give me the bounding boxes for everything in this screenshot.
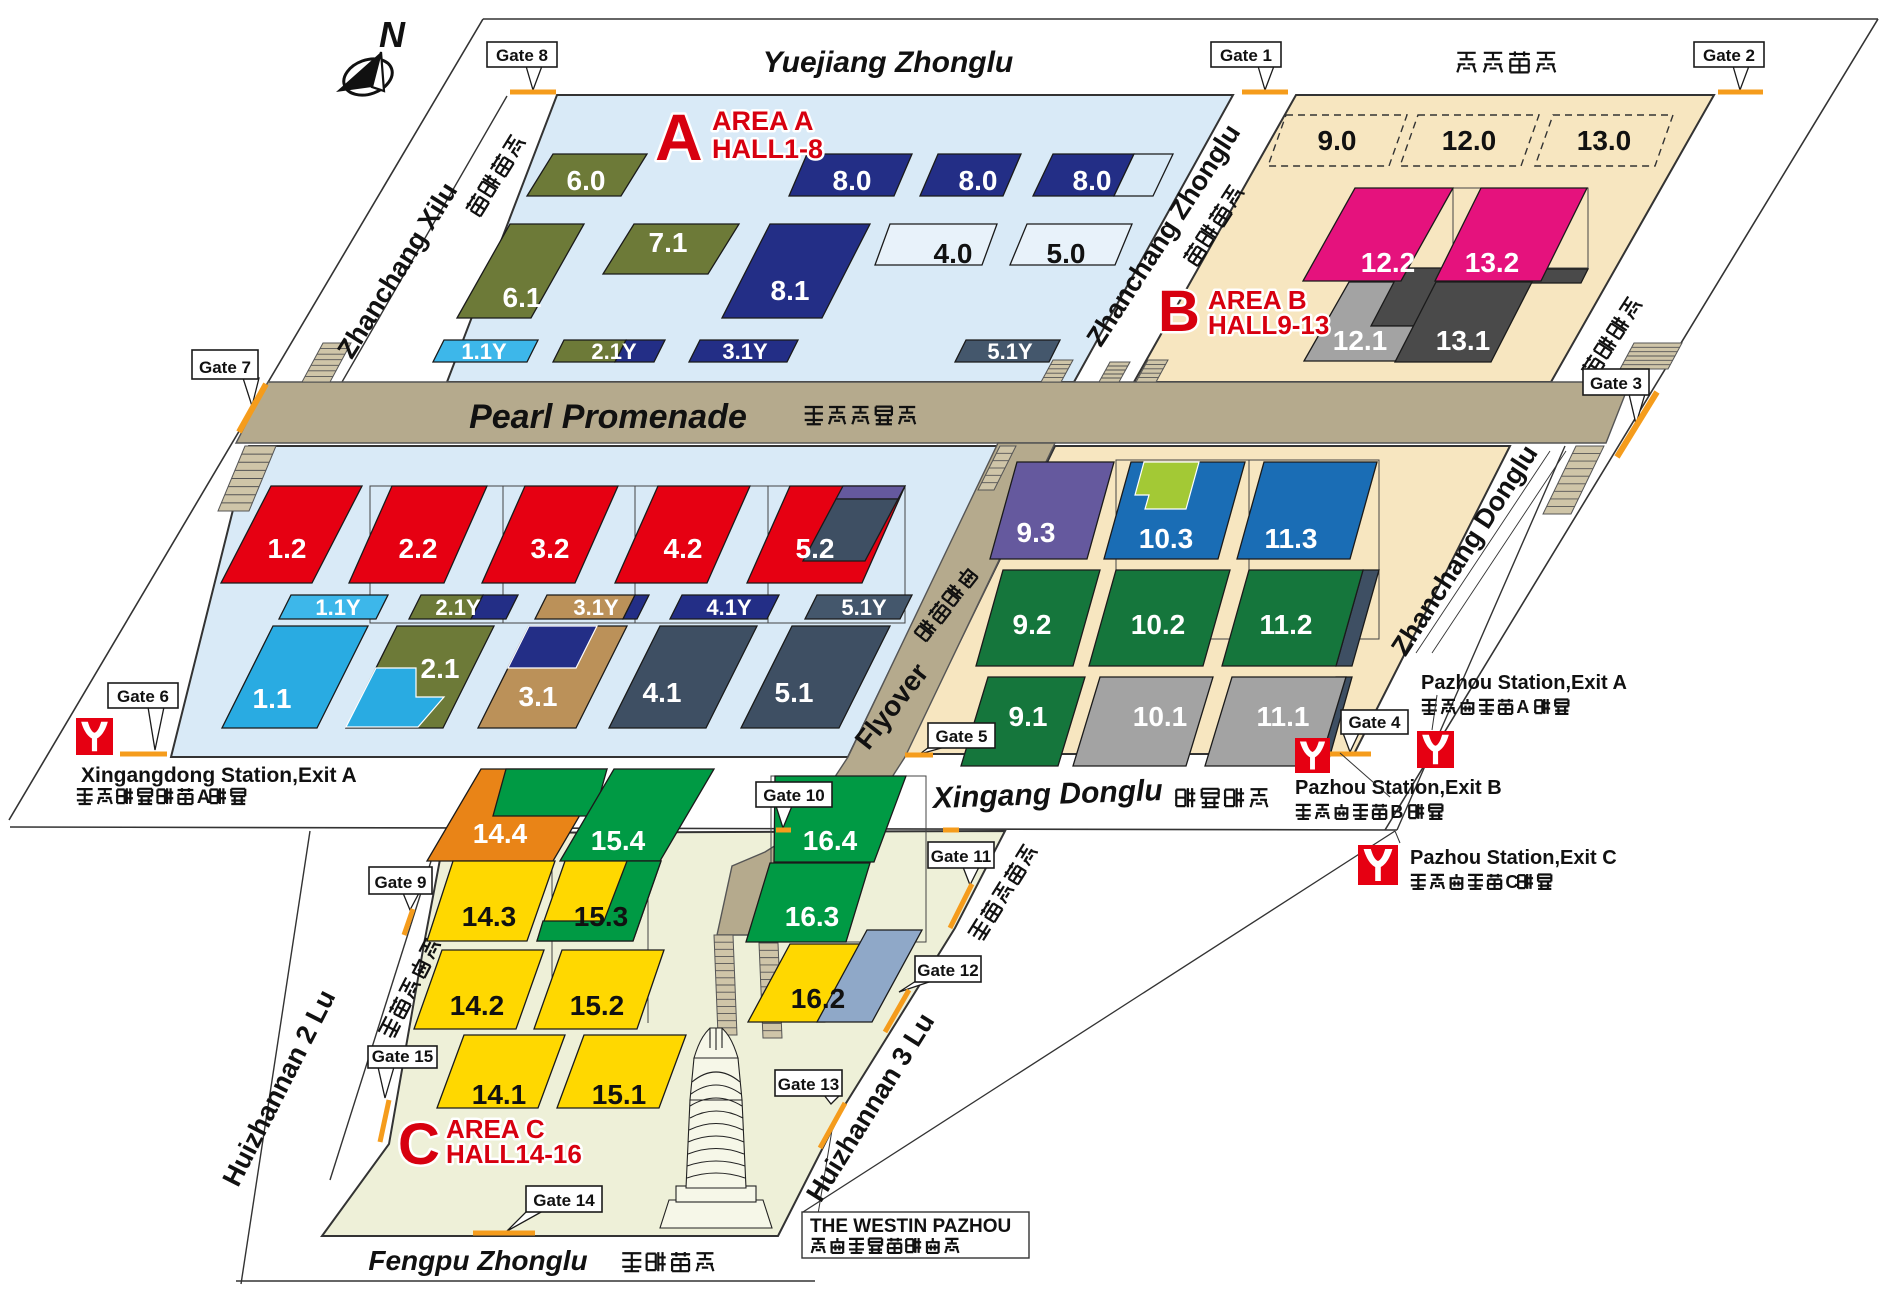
svg-text:13.2: 13.2 bbox=[1465, 247, 1520, 278]
svg-text:THE WESTIN PAZHOU: THE WESTIN PAZHOU bbox=[810, 1216, 1011, 1237]
svg-text:HALL14-16: HALL14-16 bbox=[446, 1139, 582, 1169]
svg-text:Gate 10: Gate 10 bbox=[763, 786, 824, 805]
svg-text:8.0: 8.0 bbox=[833, 165, 872, 196]
svg-text:1.1: 1.1 bbox=[253, 683, 292, 714]
svg-text:A: A bbox=[655, 100, 703, 174]
svg-text:Yuejiang Zhonglu: Yuejiang Zhonglu bbox=[763, 46, 1014, 79]
svg-text:4.1: 4.1 bbox=[643, 677, 682, 708]
svg-text:Pazhou Station,Exit B: Pazhou Station,Exit B bbox=[1295, 777, 1502, 799]
svg-text:Fengpu Zhonglu: Fengpu Zhonglu bbox=[368, 1245, 587, 1276]
svg-text:Gate 1: Gate 1 bbox=[1220, 46, 1272, 65]
svg-text:2.1Y: 2.1Y bbox=[591, 339, 637, 364]
svg-text:15.4: 15.4 bbox=[591, 825, 646, 856]
svg-text:HALL9-13: HALL9-13 bbox=[1208, 310, 1329, 340]
svg-text:9.1: 9.1 bbox=[1009, 701, 1048, 732]
svg-text:14.1: 14.1 bbox=[472, 1079, 527, 1110]
svg-text:3.1Y: 3.1Y bbox=[573, 595, 619, 620]
svg-text:Pazhou Station,Exit C: Pazhou Station,Exit C bbox=[1410, 847, 1617, 869]
svg-text:9.2: 9.2 bbox=[1013, 609, 1052, 640]
svg-text:3.1Y: 3.1Y bbox=[722, 339, 768, 364]
svg-text:10.1: 10.1 bbox=[1133, 701, 1188, 732]
svg-text:Gate 13: Gate 13 bbox=[778, 1075, 839, 1094]
svg-text:Gate 8: Gate 8 bbox=[496, 46, 548, 65]
svg-text:Gate 6: Gate 6 bbox=[117, 687, 169, 706]
svg-text:14.4: 14.4 bbox=[473, 818, 528, 849]
svg-text:5.0: 5.0 bbox=[1047, 238, 1086, 269]
svg-text:14.2: 14.2 bbox=[450, 990, 505, 1021]
svg-text:9.3: 9.3 bbox=[1017, 517, 1056, 548]
svg-text:5.1Y: 5.1Y bbox=[987, 339, 1033, 364]
svg-text:2.1Y: 2.1Y bbox=[435, 595, 481, 620]
svg-text:8.0: 8.0 bbox=[959, 165, 998, 196]
svg-text:N: N bbox=[379, 14, 406, 55]
svg-text:B: B bbox=[1390, 802, 1403, 822]
svg-text:Gate 15: Gate 15 bbox=[372, 1047, 433, 1066]
svg-text:Gate 9: Gate 9 bbox=[375, 873, 427, 892]
svg-text:5.2: 5.2 bbox=[796, 533, 835, 564]
svg-text:A: A bbox=[1516, 697, 1529, 717]
svg-text:Gate 2: Gate 2 bbox=[1703, 46, 1755, 65]
svg-text:15.3: 15.3 bbox=[574, 901, 629, 932]
svg-text:Gate 11: Gate 11 bbox=[931, 847, 992, 866]
svg-text:C: C bbox=[1505, 872, 1518, 892]
svg-text:Gate 3: Gate 3 bbox=[1590, 374, 1642, 393]
svg-text:13.1: 13.1 bbox=[1436, 325, 1491, 356]
svg-text:3.2: 3.2 bbox=[531, 533, 570, 564]
svg-text:15.1: 15.1 bbox=[592, 1079, 647, 1110]
svg-text:1.2: 1.2 bbox=[268, 533, 307, 564]
svg-text:16.4: 16.4 bbox=[803, 825, 858, 856]
svg-text:5.1: 5.1 bbox=[775, 677, 814, 708]
svg-text:10.2: 10.2 bbox=[1131, 609, 1186, 640]
svg-text:HALL1-8: HALL1-8 bbox=[712, 134, 823, 164]
svg-text:12.2: 12.2 bbox=[1361, 247, 1416, 278]
svg-text:8.0: 8.0 bbox=[1073, 165, 1112, 196]
svg-text:Gate 14: Gate 14 bbox=[533, 1191, 595, 1210]
svg-text:5.1Y: 5.1Y bbox=[841, 595, 887, 620]
svg-text:4.1Y: 4.1Y bbox=[706, 595, 752, 620]
svg-text:3.1: 3.1 bbox=[519, 681, 558, 712]
svg-text:Gate 12: Gate 12 bbox=[917, 961, 978, 980]
svg-text:Xingangdong Station,Exit A: Xingangdong Station,Exit A bbox=[81, 764, 357, 787]
svg-text:Gate 5: Gate 5 bbox=[936, 727, 988, 746]
svg-text:7.1: 7.1 bbox=[649, 227, 688, 258]
svg-text:C: C bbox=[398, 1112, 440, 1177]
svg-text:Gate 7: Gate 7 bbox=[199, 358, 251, 377]
svg-text:Pazhou Station,Exit A: Pazhou Station,Exit A bbox=[1421, 672, 1627, 694]
svg-text:12.0: 12.0 bbox=[1442, 125, 1497, 156]
svg-text:4.0: 4.0 bbox=[934, 238, 973, 269]
svg-text:8.1: 8.1 bbox=[771, 275, 810, 306]
svg-text:A: A bbox=[197, 787, 211, 808]
svg-text:11.1: 11.1 bbox=[1257, 701, 1310, 732]
svg-text:11.2: 11.2 bbox=[1260, 609, 1313, 640]
svg-text:6.0: 6.0 bbox=[567, 165, 606, 196]
svg-text:15.2: 15.2 bbox=[570, 990, 625, 1021]
svg-text:10.3: 10.3 bbox=[1139, 523, 1194, 554]
svg-text:B: B bbox=[1158, 279, 1200, 344]
svg-text:16.3: 16.3 bbox=[785, 901, 840, 932]
svg-text:Gate 4: Gate 4 bbox=[1349, 713, 1402, 732]
svg-text:1.1Y: 1.1Y bbox=[461, 339, 507, 364]
svg-text:11.3: 11.3 bbox=[1265, 523, 1318, 554]
svg-text:14.3: 14.3 bbox=[462, 901, 517, 932]
svg-text:2.1: 2.1 bbox=[421, 653, 460, 684]
svg-text:4.2: 4.2 bbox=[664, 533, 703, 564]
svg-text:AREA A: AREA A bbox=[712, 106, 814, 136]
svg-text:1.1Y: 1.1Y bbox=[315, 595, 361, 620]
svg-text:16.2: 16.2 bbox=[791, 983, 846, 1014]
svg-text:Pearl Promenade: Pearl Promenade bbox=[469, 398, 747, 436]
svg-text:6.1: 6.1 bbox=[503, 282, 542, 313]
svg-text:2.2: 2.2 bbox=[399, 533, 438, 564]
svg-text:12.1: 12.1 bbox=[1333, 325, 1388, 356]
svg-text:9.0: 9.0 bbox=[1318, 125, 1357, 156]
svg-text:13.0: 13.0 bbox=[1577, 125, 1632, 156]
